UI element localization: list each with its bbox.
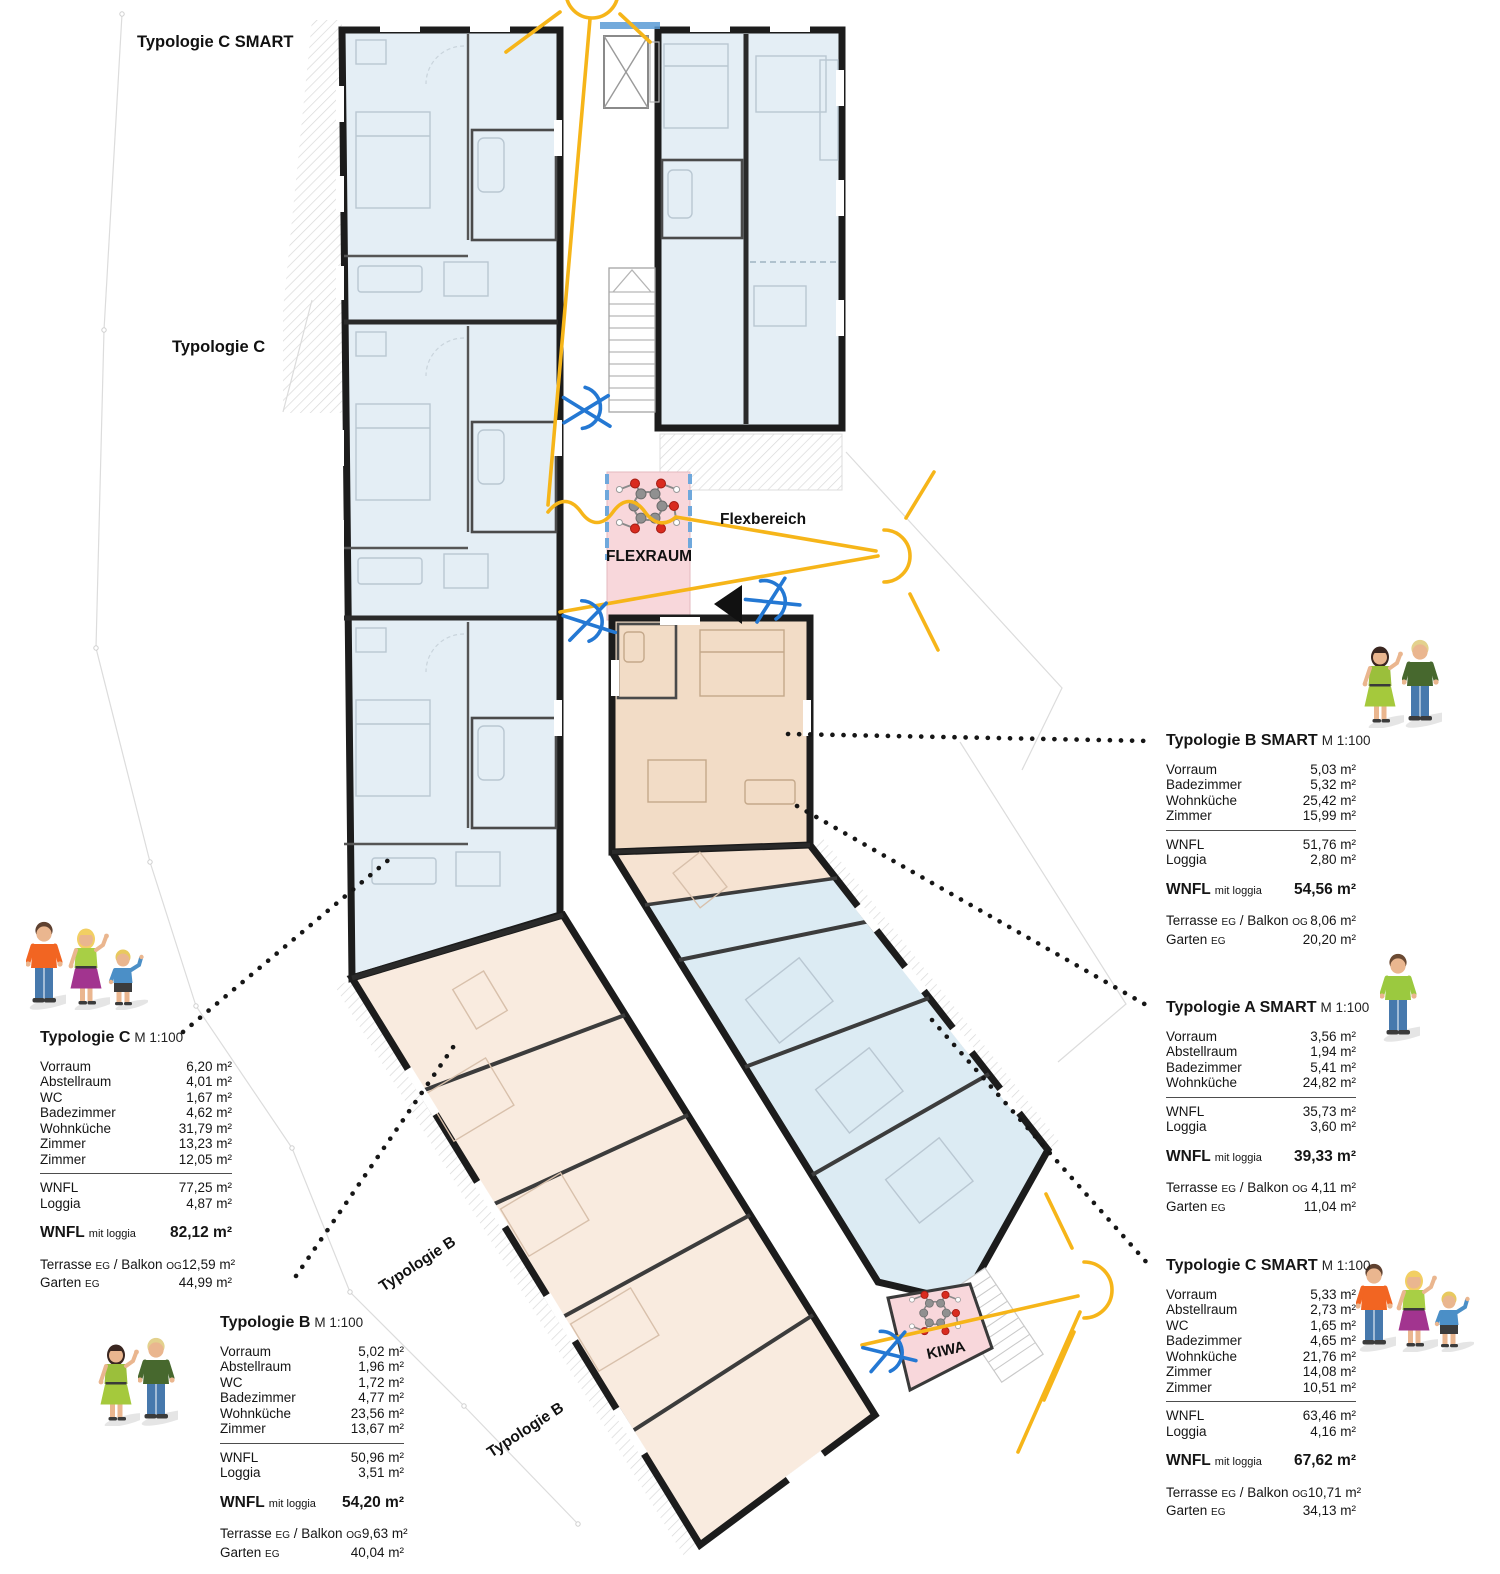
table-row: Vorraum5,03 m² bbox=[1166, 762, 1356, 778]
sightline-icon bbox=[560, 385, 615, 433]
floorplan-page: { "plan": { "labels": { "typologie_c_sma… bbox=[0, 0, 1500, 1574]
table-row: Terrasse EG / Balkon OG10,71 m² bbox=[1166, 1485, 1356, 1504]
table-row: Zimmer13,67 m² bbox=[220, 1421, 404, 1437]
table-row: Badezimmer4,77 m² bbox=[220, 1390, 404, 1406]
table-row: Wohnküche31,79 m² bbox=[40, 1121, 232, 1137]
person-woman bbox=[69, 929, 119, 1014]
table-separator bbox=[1166, 1097, 1356, 1098]
table-rooms: Vorraum5,03 m²Badezimmer5,32 m²Wohnküche… bbox=[1166, 762, 1356, 824]
table-subtotals: WNFL50,96 m²Loggia3,51 m² bbox=[220, 1450, 404, 1481]
person-woman bbox=[1363, 647, 1413, 732]
table-subtotals: WNFL35,73 m²Loggia3,60 m² bbox=[1166, 1104, 1356, 1135]
table-row: Zimmer15,99 m² bbox=[1166, 808, 1356, 824]
table-title: Typologie C SMARTM 1:100 bbox=[1166, 1258, 1356, 1274]
table-row: Vorraum6,20 m² bbox=[40, 1059, 232, 1075]
table-row: Garten EG40,04 m² bbox=[220, 1545, 404, 1564]
area-table-typologie-c-smart: Typologie C SMARTM 1:100 Vorraum5,33 m²A… bbox=[1166, 1258, 1356, 1522]
table-row: Vorraum5,33 m² bbox=[1166, 1287, 1356, 1303]
table-rooms: Vorraum3,56 m²Abstellraum1,94 m²Badezimm… bbox=[1166, 1029, 1356, 1091]
table-extras: Terrasse EG / Balkon OG12,59 m²Garten EG… bbox=[40, 1257, 232, 1294]
table-row: Abstellraum1,96 m² bbox=[220, 1359, 404, 1375]
table-row: Terrasse EG / Balkon OG9,63 m² bbox=[220, 1526, 404, 1545]
table-rooms: Vorraum6,20 m²Abstellraum4,01 m²WC1,67 m… bbox=[40, 1059, 232, 1168]
table-total-row: WNFL mit loggia 67,62 m² bbox=[1166, 1453, 1356, 1471]
table-row: Terrasse EG / Balkon OG4,11 m² bbox=[1166, 1180, 1356, 1199]
table-total-row: WNFL mit loggia 54,20 m² bbox=[220, 1495, 404, 1513]
table-row: Garten EG11,04 m² bbox=[1166, 1199, 1356, 1218]
table-total-row: WNFL mit loggia 54,56 m² bbox=[1166, 882, 1356, 900]
daylight-wavy-line bbox=[548, 502, 876, 552]
table-extras: Terrasse EG / Balkon OG8,06 m²Garten EG2… bbox=[1166, 913, 1356, 950]
table-row: Zimmer12,05 m² bbox=[40, 1152, 232, 1168]
table-row: Wohnküche21,76 m² bbox=[1166, 1349, 1356, 1365]
table-rooms: Vorraum5,33 m²Abstellraum2,73 m²WC1,65 m… bbox=[1166, 1287, 1356, 1396]
table-separator bbox=[40, 1173, 232, 1174]
people-family-right bbox=[1355, 1264, 1475, 1356]
table-subtotals: WNFL63,46 m²Loggia4,16 m² bbox=[1166, 1408, 1356, 1439]
table-extras: Terrasse EG / Balkon OG10,71 m²Garten EG… bbox=[1166, 1485, 1356, 1522]
area-table-typologie-b: Typologie BM 1:100 Vorraum5,02 m²Abstell… bbox=[220, 1315, 404, 1563]
table-title: Typologie B SMARTM 1:100 bbox=[1166, 733, 1356, 749]
label-flexbereich: Flexbereich bbox=[720, 511, 806, 528]
table-total-row: WNFL mit loggia 82,12 m² bbox=[40, 1225, 232, 1243]
table-row: Garten EG20,20 m² bbox=[1166, 932, 1356, 951]
table-row: WNFL63,46 m² bbox=[1166, 1408, 1356, 1424]
table-row: Garten EG34,13 m² bbox=[1166, 1503, 1356, 1522]
table-row: Wohnküche24,82 m² bbox=[1166, 1075, 1356, 1091]
table-subtotals: WNFL77,25 m²Loggia4,87 m² bbox=[40, 1180, 232, 1211]
building-top-right bbox=[658, 28, 842, 428]
table-row: WNFL51,76 m² bbox=[1166, 837, 1356, 853]
people-pair-bottom-left bbox=[99, 1338, 192, 1430]
person-man bbox=[137, 1338, 191, 1429]
person-woman bbox=[99, 1345, 149, 1430]
table-extras: Terrasse EG / Balkon OG9,63 m²Garten EG4… bbox=[220, 1526, 404, 1563]
table-row: WNFL35,73 m² bbox=[1166, 1104, 1356, 1120]
table-total-row: WNFL mit loggia 39,33 m² bbox=[1166, 1149, 1356, 1167]
table-row: Abstellraum4,01 m² bbox=[40, 1074, 232, 1090]
people-pair-top-right bbox=[1363, 640, 1456, 732]
stair-core bbox=[600, 22, 660, 412]
table-row: Zimmer14,08 m² bbox=[1166, 1364, 1356, 1380]
people-family-left bbox=[25, 922, 149, 1014]
table-subtotals: WNFL51,76 m²Loggia2,80 m² bbox=[1166, 837, 1356, 868]
table-title: Typologie CM 1:100 bbox=[40, 1030, 232, 1046]
label-typologie-b-upper: Typologie B bbox=[376, 1233, 459, 1295]
table-extras: Terrasse EG / Balkon OG4,11 m²Garten EG1… bbox=[1166, 1180, 1356, 1217]
table-scale: M 1:100 bbox=[314, 1315, 363, 1330]
table-row: WNFL77,25 m² bbox=[40, 1180, 232, 1196]
table-separator bbox=[1166, 830, 1356, 831]
table-row: Loggia3,51 m² bbox=[220, 1465, 404, 1481]
table-row: Zimmer13,23 m² bbox=[40, 1136, 232, 1152]
table-row: Badezimmer4,62 m² bbox=[40, 1105, 232, 1121]
table-row: Terrasse EG / Balkon OG8,06 m² bbox=[1166, 913, 1356, 932]
table-separator bbox=[220, 1443, 404, 1444]
table-scale: M 1:100 bbox=[1322, 1258, 1371, 1273]
table-row: WNFL50,96 m² bbox=[220, 1450, 404, 1466]
table-row: Zimmer10,51 m² bbox=[1166, 1380, 1356, 1396]
table-row: Badezimmer5,32 m² bbox=[1166, 777, 1356, 793]
table-row: Badezimmer5,41 m² bbox=[1166, 1060, 1356, 1076]
table-row: Wohnküche23,56 m² bbox=[220, 1406, 404, 1422]
table-title: Typologie BM 1:100 bbox=[220, 1315, 404, 1331]
area-table-typologie-a-smart: Typologie A SMARTM 1:100 Vorraum3,56 m²A… bbox=[1166, 1000, 1356, 1217]
table-title: Typologie A SMARTM 1:100 bbox=[1166, 1000, 1356, 1016]
label-typologie-b-lower: Typologie B bbox=[484, 1399, 567, 1461]
table-row: Terrasse EG / Balkon OG12,59 m² bbox=[40, 1257, 232, 1276]
person-boy bbox=[109, 950, 150, 1013]
table-row: Loggia4,87 m² bbox=[40, 1196, 232, 1212]
table-row: WC1,65 m² bbox=[1166, 1318, 1356, 1334]
person-man-single bbox=[1379, 954, 1433, 1045]
table-scale: M 1:100 bbox=[1321, 1000, 1370, 1015]
table-row: WC1,72 m² bbox=[220, 1375, 404, 1391]
person-man bbox=[1355, 1264, 1409, 1355]
table-row: Loggia2,80 m² bbox=[1166, 852, 1356, 868]
area-table-typologie-b-smart: Typologie B SMARTM 1:100 Vorraum5,03 m²B… bbox=[1166, 733, 1356, 950]
table-scale: M 1:100 bbox=[1322, 733, 1371, 748]
table-row: Loggia3,60 m² bbox=[1166, 1119, 1356, 1135]
table-row: Garten EG44,99 m² bbox=[40, 1275, 232, 1294]
area-table-typologie-c: Typologie CM 1:100 Vorraum6,20 m²Abstell… bbox=[40, 1030, 232, 1294]
person-boy bbox=[1435, 1292, 1476, 1355]
table-row: Wohnküche25,42 m² bbox=[1166, 793, 1356, 809]
building-left-wing bbox=[340, 28, 560, 978]
flexraum-label: FLEXRAUM bbox=[606, 548, 692, 565]
table-row: Vorraum3,56 m² bbox=[1166, 1029, 1356, 1045]
label-typologie-c: Typologie C bbox=[172, 338, 265, 356]
table-row: Vorraum5,02 m² bbox=[220, 1344, 404, 1360]
table-rooms: Vorraum5,02 m²Abstellraum1,96 m²WC1,72 m… bbox=[220, 1344, 404, 1437]
person-man bbox=[1401, 640, 1455, 731]
table-row: Loggia4,16 m² bbox=[1166, 1424, 1356, 1440]
table-scale: M 1:100 bbox=[134, 1030, 183, 1045]
label-typologie-c-smart: Typologie C SMART bbox=[137, 33, 293, 51]
table-row: Abstellraum2,73 m² bbox=[1166, 1302, 1356, 1318]
table-row: WC1,67 m² bbox=[40, 1090, 232, 1106]
table-row: Abstellraum1,94 m² bbox=[1166, 1044, 1356, 1060]
table-separator bbox=[1166, 1401, 1356, 1402]
table-row: Badezimmer4,65 m² bbox=[1166, 1333, 1356, 1349]
